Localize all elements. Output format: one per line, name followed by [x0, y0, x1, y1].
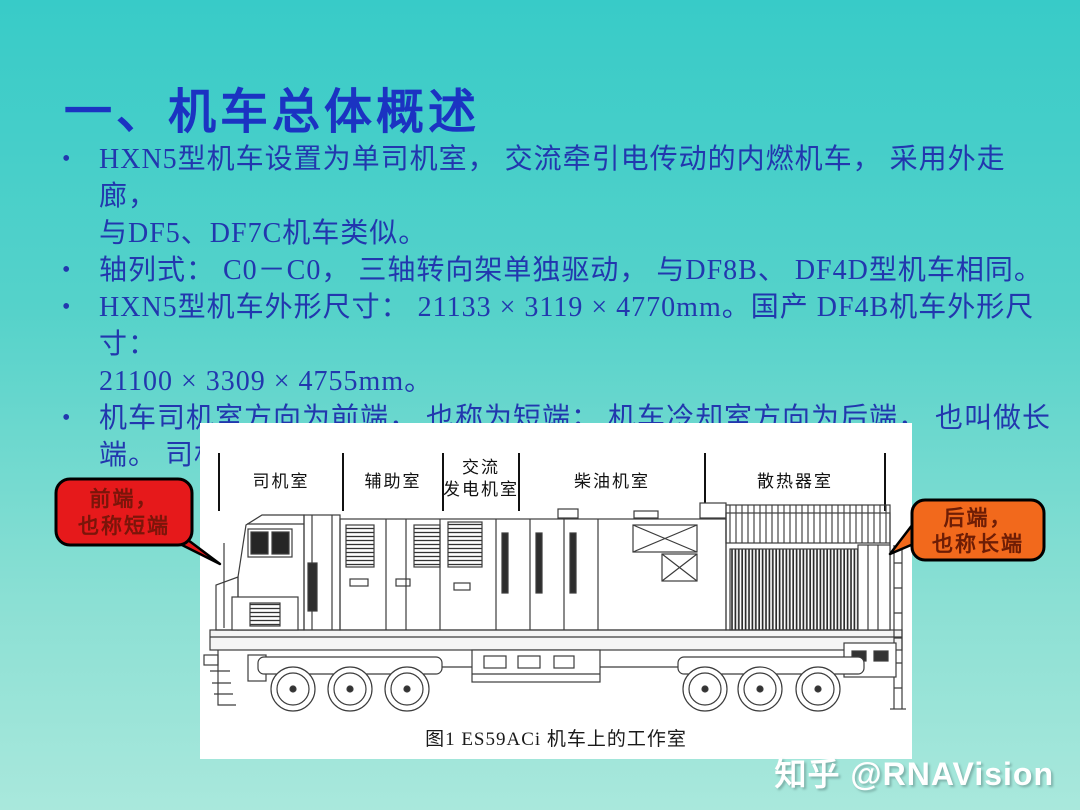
front-callout-text-line2: 也称短端 [78, 514, 170, 538]
compartment-label-radiator: 散热器室 [757, 472, 833, 491]
front-end-callout: 前端， 也称短端 [48, 474, 228, 570]
bullet-text-line: HXN5型机车设置为单司机室， 交流牵引电传动的内燃机车， 采用外走廊， [99, 141, 1062, 215]
figure-caption: 图1 ES59ACi 机车上的工作室 [425, 728, 687, 750]
locomotive-drawing [204, 503, 906, 711]
rear-end-callout: 后端， 也称长端 [876, 492, 1056, 587]
bullet-item: • HXN5型机车外形尺寸： 21133 × 3119 × 4770mm。国产 … [62, 289, 1062, 400]
compartment-label-alternator-line1: 交流 [462, 458, 500, 477]
rear-bogie-wheels [683, 667, 840, 711]
bullet-marker: • [62, 141, 99, 252]
bullet-marker: • [62, 289, 99, 400]
front-callout-text-line1: 前端， [90, 487, 159, 511]
rear-callout-text-line2: 也称长端 [932, 532, 1024, 556]
bullet-item: • 轴列式： C0－C0， 三轴转向架单独驱动， 与DF8B、 DF4D型机车相… [62, 252, 1062, 289]
bullet-text-line: HXN5型机车外形尺寸： 21133 × 3119 × 4770mm。国产 DF… [99, 289, 1062, 363]
bullet-text-line: 与DF5、DF7C机车类似。 [99, 215, 1062, 252]
compartment-label-alternator-line2: 发电机室 [443, 480, 519, 499]
bullet-text-line: 21100 × 3309 × 4755mm。 [99, 363, 1062, 400]
rear-callout-text-line1: 后端， [944, 506, 1013, 530]
compartment-label-diesel: 柴油机室 [574, 472, 650, 491]
bullet-marker: • [62, 400, 99, 474]
watermark: 知乎 @RNAVision [775, 749, 1055, 795]
bullet-marker: • [62, 252, 99, 289]
bullet-item: • HXN5型机车设置为单司机室， 交流牵引电传动的内燃机车， 采用外走廊， 与… [62, 141, 1062, 252]
locomotive-diagram: 司机室 辅助室 交流 发电机室 柴油机室 散热器室 [200, 423, 912, 759]
compartment-label-band: 司机室 辅助室 交流 发电机室 柴油机室 散热器室 [219, 453, 885, 511]
slide-title: 一、机车总体概述 [64, 72, 480, 142]
front-bogie-wheels [271, 667, 429, 711]
bullet-text-line: 轴列式： C0－C0， 三轴转向架单独驱动， 与DF8B、 DF4D型机车相同。 [99, 252, 1062, 289]
compartment-label-auxiliary: 辅助室 [365, 472, 422, 491]
presentation-slide: 一、机车总体概述 • HXN5型机车设置为单司机室， 交流牵引电传动的内燃机车，… [0, 0, 1080, 810]
compartment-label-cab: 司机室 [253, 472, 310, 491]
